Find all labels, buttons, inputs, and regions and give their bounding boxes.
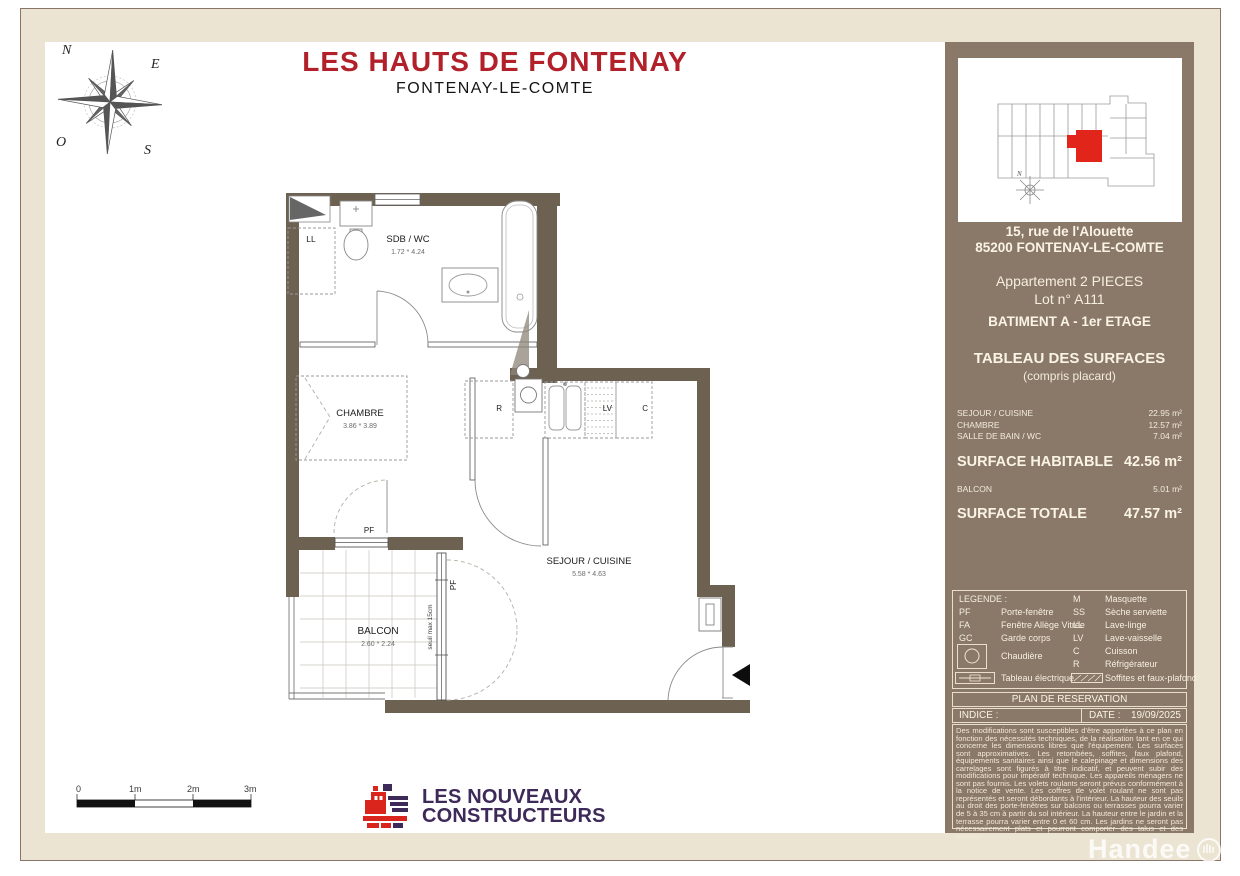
surface-row-label: CHAMBRE xyxy=(957,420,1000,432)
washer-label: LL xyxy=(306,234,316,244)
floor-plan: SDB / WC 1.72 * 4.24 LL CHAMBRE 3.86 * 3… xyxy=(280,185,750,730)
address-line2: 85200 FONTENAY-LE-COMTE xyxy=(945,240,1194,256)
watermark-text: Handee xyxy=(1088,834,1192,865)
legend-label: Porte-fenêtre xyxy=(1001,607,1054,617)
balcon-label: BALCON xyxy=(957,484,992,494)
legend-label: Masquette xyxy=(1105,594,1147,604)
surface-row-label: SEJOUR / CUISINE xyxy=(957,408,1033,420)
legend-key: LL xyxy=(1073,620,1083,630)
boiler-symbol xyxy=(515,379,542,412)
dishwasher-label: LV xyxy=(603,404,613,413)
surface-totale-row: SURFACE TOTALE 47.57 m² xyxy=(957,506,1182,522)
scale-bar: 0 1m 2m 3m xyxy=(72,782,264,814)
scale-tick-2: 2m xyxy=(187,784,200,794)
surface-row-value: 22.95 m² xyxy=(1148,408,1182,420)
electrical-board-legend-icon xyxy=(955,672,995,684)
legend-key: M xyxy=(1073,594,1081,604)
room-label-chambre: CHAMBRE xyxy=(336,408,384,419)
fridge-label: R xyxy=(496,404,502,413)
legend-label-soffites: Soffites et faux-plafond xyxy=(1105,673,1197,683)
boiler-legend-icon xyxy=(957,644,987,669)
lot-number: Lot n° A111 xyxy=(945,290,1194,308)
legend-key: LV xyxy=(1073,633,1083,643)
watermark: Handee xyxy=(1088,834,1222,865)
balcon-value: 5.01 m² xyxy=(1153,484,1182,494)
balcon-row: BALCON 5.01 m² xyxy=(957,484,1182,494)
developer-logo-icon xyxy=(358,784,414,830)
legend-key: SS xyxy=(1073,607,1085,617)
compass-west-label: O xyxy=(56,135,66,150)
pf-window-balcony-right xyxy=(435,553,448,700)
soffit-legend-swatch xyxy=(1071,673,1103,683)
surface-row-label: SALLE DE BAIN / WC xyxy=(957,431,1041,443)
balcony-tile-grid xyxy=(300,550,437,698)
title-block: LES HAUTS DE FONTENAY FONTENAY-LE-COMTE xyxy=(45,46,945,100)
legend-key: C xyxy=(1073,646,1080,656)
surface-habitable-label: SURFACE HABITABLE xyxy=(957,454,1113,470)
page-subtitle: FONTENAY-LE-COMTE xyxy=(45,78,945,100)
reservation-banner: PLAN DE RESERVATION xyxy=(952,692,1187,707)
room-label-sejour: SEJOUR / CUISINE xyxy=(547,556,632,567)
indice-label: INDICE : xyxy=(959,709,998,722)
legend-label: Cuisson xyxy=(1105,646,1138,656)
electrical-board xyxy=(699,598,721,631)
address-line1: 15, rue de l'Alouette xyxy=(945,224,1194,240)
kitchen-sink xyxy=(549,383,581,431)
plan-reservation-page: N E O S LES HAUTS DE FONTENAY FONTENAY-L… xyxy=(0,0,1240,876)
vanity-sink xyxy=(442,268,498,302)
cell-divider xyxy=(1081,709,1082,722)
pf-label-right: PF xyxy=(449,580,458,590)
surface-totale-label: SURFACE TOTALE xyxy=(957,506,1087,522)
surface-habitable-row: SURFACE HABITABLE 42.56 m² xyxy=(957,454,1182,470)
garde-corps xyxy=(289,597,385,699)
developer-logo: LES NOUVEAUX CONSTRUCTEURS xyxy=(358,784,606,830)
legend-box: LEGENDE : PF Porte-fenêtre FA Fenêtre Al… xyxy=(952,590,1187,689)
indice-date-row: INDICE : DATE : 19/09/2025 xyxy=(952,708,1187,723)
date-label: DATE : xyxy=(1089,709,1120,722)
legend-label: Garde corps xyxy=(1001,633,1051,643)
compass-south-label: S xyxy=(144,143,151,158)
bathtub xyxy=(502,201,537,332)
surface-row: CHAMBRE 12.57 m² xyxy=(957,420,1182,432)
hand-icon xyxy=(1196,837,1222,863)
legend-label: Sèche serviette xyxy=(1105,607,1167,617)
seuil-note: seuil max 15cm xyxy=(427,604,434,649)
room-label-balcon: BALCON xyxy=(357,626,398,637)
surface-row: SEJOUR / CUISINE 22.95 m² xyxy=(957,408,1182,420)
cooking-label: C xyxy=(642,404,648,413)
surface-row-value: 12.57 m² xyxy=(1148,420,1182,432)
surface-row: SALLE DE BAIN / WC 7.04 m² xyxy=(957,431,1182,443)
project-address: 15, rue de l'Alouette 85200 FONTENAY-LE-… xyxy=(945,224,1194,256)
legend-key: FA xyxy=(959,620,970,630)
legend-label-chaudiere: Chaudière xyxy=(1001,651,1043,661)
surface-totale-value: 47.57 m² xyxy=(1124,506,1182,522)
building-floor: BATIMENT A - 1er ETAGE xyxy=(945,314,1194,329)
room-dims-balcon: 2.60 * 2.24 xyxy=(361,641,395,648)
surface-row-value: 7.04 m² xyxy=(1153,431,1182,443)
corner-shelf xyxy=(289,196,330,222)
entrance-arrow-icon xyxy=(732,664,750,686)
date-value: 19/09/2025 xyxy=(1131,709,1181,722)
developer-logo-line2: CONSTRUCTEURS xyxy=(422,807,606,826)
surfaces-table-title: TABLEAU DES SURFACES xyxy=(945,350,1194,367)
apartment-info: Appartement 2 PIECES Lot n° A111 xyxy=(945,272,1194,308)
surfaces-rows: SEJOUR / CUISINE 22.95 m² CHAMBRE 12.57 … xyxy=(957,408,1182,443)
page-title: LES HAUTS DE FONTENAY xyxy=(45,46,945,78)
scale-tick-3: 3m xyxy=(244,784,257,794)
pf-label-top: PF xyxy=(364,526,374,535)
window-fa xyxy=(375,194,420,205)
pf-window-chambre xyxy=(335,538,388,547)
legend-label: Lave-vaisselle xyxy=(1105,633,1162,643)
legend-key: PF xyxy=(959,607,971,617)
room-dims-sdb: 1.72 * 4.24 xyxy=(391,249,425,256)
building-locator-map: N xyxy=(958,58,1182,222)
room-label-sdb: SDB / WC xyxy=(386,234,429,245)
legend-label-tableau: Tableau électrique xyxy=(1001,673,1074,683)
room-dims-sejour: 5.58 * 4.63 xyxy=(572,571,606,578)
info-sidebar: N 15, rue de l'Alouette 85200 FONTENAY-L… xyxy=(945,42,1194,833)
disclaimer-text: Des modifications sont susceptibles d'êt… xyxy=(952,724,1187,829)
scale-tick-0: 0 xyxy=(76,784,81,794)
surface-habitable-value: 42.56 m² xyxy=(1124,454,1182,470)
svg-text:N: N xyxy=(1016,170,1022,178)
legend-key: GC xyxy=(959,633,973,643)
legend-label: Réfrigérateur xyxy=(1105,659,1158,669)
room-dims-chambre: 3.86 * 3.89 xyxy=(343,423,377,430)
legend-key: R xyxy=(1073,659,1080,669)
toilet xyxy=(340,201,372,260)
surfaces-table-subtitle: (compris placard) xyxy=(945,369,1194,383)
highlighted-unit xyxy=(1067,130,1102,162)
legend-title: LEGENDE : xyxy=(959,594,1007,604)
legend-label: Lave-linge xyxy=(1105,620,1147,630)
apartment-type: Appartement 2 PIECES xyxy=(945,272,1194,290)
scale-tick-1: 1m xyxy=(129,784,142,794)
